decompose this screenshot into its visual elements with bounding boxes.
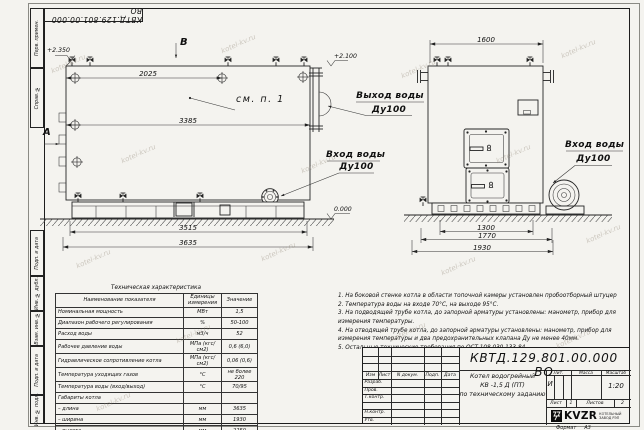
dim-1770: 1770 (459, 232, 515, 240)
row-value: 70/95 (222, 382, 258, 393)
drawing-sheet: Перв. примен. Справ. № Подп. и дата Инв.… (0, 0, 644, 430)
row-unit: МВт (184, 307, 222, 318)
col-header-units: Единицы измерения (184, 293, 222, 307)
row-value: 1930 (222, 414, 258, 425)
safety-valve-icon (445, 57, 452, 66)
row-unit: °С (184, 382, 222, 393)
scale-header: Масштаб (601, 371, 631, 376)
inlet-dn-front: Ду100 (338, 162, 375, 172)
row-unit: м3/ч (184, 329, 222, 340)
table-row: – ширинамм1930 (56, 414, 258, 425)
sheet-number: 1 (566, 401, 576, 406)
col-data: Дата (441, 373, 459, 378)
tech-characteristics-table: Техническая характеристика Наименование … (55, 285, 257, 430)
view-label-a: А (43, 127, 51, 138)
safety-valve-icon (527, 57, 534, 66)
technical-notes: 1. На боковой стенке котла в области топ… (338, 292, 628, 353)
row-name: Гидравлическое сопротивление котла (56, 354, 184, 368)
row-unit: % (184, 318, 222, 329)
row-name: – ширина (56, 414, 184, 425)
row-value: 1,5 (222, 307, 258, 318)
row-name: Температура воды (вход/выход) (56, 382, 184, 393)
safety-valve-icon (69, 57, 76, 66)
col-podp: Подп. (424, 373, 441, 378)
front-view (40, 43, 350, 251)
elevation-outlet: +2.100 (334, 53, 357, 60)
safety-valve-icon (434, 57, 441, 66)
dim-3515: 3515 (160, 224, 216, 232)
table-row: Диапазон рабочего регулирования%50-100 (56, 318, 258, 329)
row-name: Рабочее давление воды (56, 340, 184, 354)
logo-text: KVZR (564, 410, 597, 422)
row-unit: МПа (кгс/см2) (184, 340, 222, 354)
row-name: – длина (56, 403, 184, 414)
inlet-label-side: Вход воды (565, 140, 624, 150)
row-unit: мм (184, 425, 222, 430)
row-unit: мм (184, 414, 222, 425)
note-3: 3. На подводящей трубе котла, до запорно… (338, 309, 628, 326)
row-unit (184, 393, 222, 404)
sheets-label: Листов (576, 401, 614, 406)
row-razrab: Разраб. (365, 380, 383, 385)
table-row: Рабочее давление водыМПа (кгс/см2)0,6 (6… (56, 340, 258, 354)
sheets-total: 2 (614, 401, 631, 406)
table-header-row: Наименование показателя Единицы измерени… (56, 293, 258, 307)
row-value: 0,06 (0,6) (222, 354, 258, 368)
outlet-label: Выход воды (355, 91, 425, 101)
lit-value: И (546, 380, 554, 388)
dim-1600: 1600 (458, 36, 514, 44)
row-tkontr: Т.контр. (365, 395, 385, 400)
row-name: Расход воды (56, 329, 184, 340)
manufacturer-logo: KVZR КОТЕЛЬНЫЙ ЗАВОД РЭП (551, 408, 629, 424)
see-note-label: см. п. 1 (236, 94, 285, 105)
row-unit: МПа (кгс/см2) (184, 354, 222, 368)
table-row: Расход водым3/ч52 (56, 329, 258, 340)
row-value: 52 (222, 329, 258, 340)
row-nkontr: Н.контр. (365, 410, 386, 415)
mass-header: Масса (571, 371, 601, 376)
row-name: Габариты котла (56, 393, 184, 404)
row-value: не более 220 (222, 368, 258, 382)
row-name: Температура уходящих газов (56, 368, 184, 382)
col-izm: Изм (363, 373, 378, 378)
table-row: Температура уходящих газов°Сне более 220 (56, 368, 258, 382)
scale-value: 1:20 (601, 382, 631, 390)
note-4: 4. На отводящей трубе котла, до запорной… (338, 327, 628, 344)
safety-valve-icon (273, 57, 280, 66)
note-2: 2. Температура воды на входе 70°С, на вы… (338, 301, 628, 310)
row-prov: Пров. (365, 388, 378, 393)
row-value: 50-100 (222, 318, 258, 329)
table-row: Гидравлическое сопротивление котлаМПа (к… (56, 354, 258, 368)
product-name-line3: по техническому заданию (459, 391, 546, 398)
kvzr-logo-icon (551, 410, 562, 422)
row-name: Диапазон рабочего регулирования (56, 318, 184, 329)
row-unit: °С (184, 368, 222, 382)
table-row: Габариты котла (56, 393, 258, 404)
format-note: Формат А3 (556, 425, 591, 430)
logo-subtitle: КОТЕЛЬНЫЙ ЗАВОД РЭП (599, 412, 621, 421)
col-list: Лист (378, 373, 391, 378)
outlet-dn-label: Ду100 (365, 105, 413, 115)
safety-valve-icon (87, 57, 94, 66)
view-label-b: В (180, 37, 188, 48)
row-name: – высота (56, 425, 184, 430)
ground-hatching (404, 216, 612, 223)
sheet-label: Лист (546, 401, 566, 406)
row-utv: Утв. (365, 418, 375, 423)
dim-1930: 1930 (454, 244, 510, 252)
drain-valve-icon (420, 197, 427, 206)
lit-header: Лит. (546, 371, 571, 376)
col-header-value: Значение (222, 293, 258, 307)
row-name: Номинальная мощность (56, 307, 184, 318)
inlet-label-front: Вход воды (326, 150, 381, 160)
safety-valve-icon (301, 57, 308, 66)
row-unit: мм (184, 403, 222, 414)
title-block: Изм Лист N докум. Подп. Дата Разраб. Про… (362, 347, 630, 424)
table-row: – высотамм2250 (56, 425, 258, 430)
product-name-line1: Котел водогрейный (459, 373, 546, 380)
dim-3385: 3385 (160, 117, 216, 125)
blower-fan (546, 180, 584, 214)
row-value: 2250 (222, 425, 258, 430)
table-row: – длинамм3635 (56, 403, 258, 414)
col-header-name: Наименование показателя (56, 293, 184, 307)
dim-2025: 2025 (120, 70, 176, 78)
tech-table-title: Техническая характеристика (55, 285, 257, 291)
col-ndokum: N докум. (391, 373, 424, 378)
table-row: Номинальная мощностьМВт1,5 (56, 307, 258, 318)
note-1: 1. На боковой стенке котла в области топ… (338, 292, 628, 301)
dim-3635: 3635 (160, 239, 216, 247)
safety-valve-icon (225, 57, 232, 66)
elevation-zero: 0.000 (334, 206, 352, 213)
table-row: Температура воды (вход/выход)°С70/95 (56, 382, 258, 393)
elevation-top: +2.350 (47, 47, 70, 54)
row-value (222, 393, 258, 404)
dim-1300: 1300 (458, 224, 514, 232)
row-value: 0,6 (6,0) (222, 340, 258, 354)
inlet-dn-side: Ду100 (574, 154, 613, 164)
row-value: 3635 (222, 403, 258, 414)
product-name-line2: КВ -1,5 Д (ПТ) (459, 382, 546, 389)
